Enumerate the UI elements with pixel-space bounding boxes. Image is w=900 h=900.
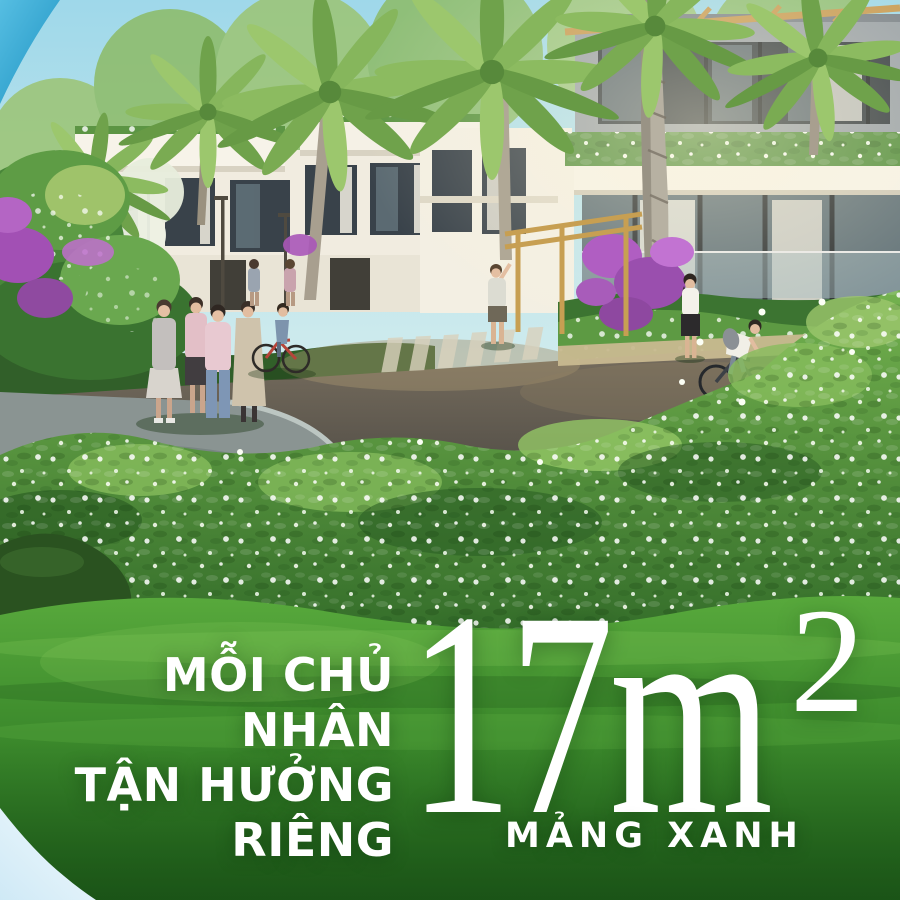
headline-line-1: MỖI CHỦ NHÂN (0, 648, 394, 758)
area-exponent: 2 (790, 586, 865, 736)
headline: MỖI CHỦ NHÂN TẬN HƯỞNG RIÊNG (0, 648, 394, 868)
rock-highlight (0, 547, 84, 577)
real-estate-poster: MỖI CHỦ NHÂN TẬN HƯỞNG RIÊNG 17m 2 MẢNG … (0, 0, 900, 900)
area-caption: MẢNG XANH (505, 819, 804, 854)
headline-line-3: RIÊNG (0, 813, 394, 868)
headline-line-2: TẬN HƯỞNG (0, 758, 394, 813)
